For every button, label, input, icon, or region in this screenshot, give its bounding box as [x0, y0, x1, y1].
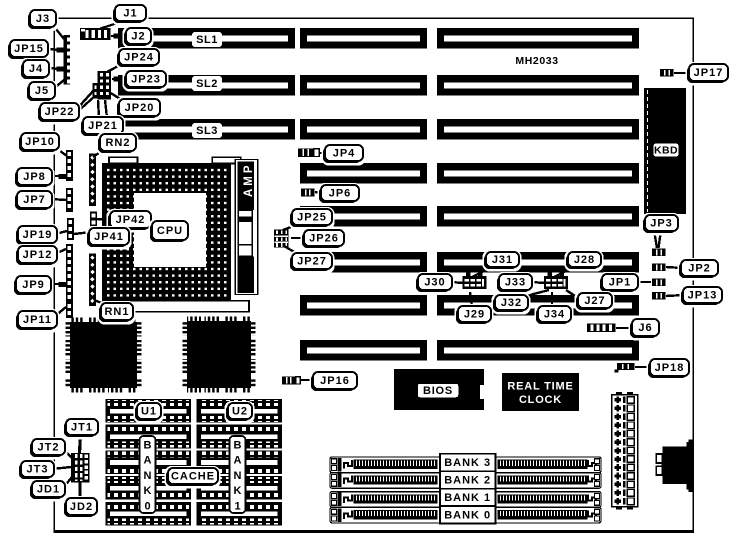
svg-text:J4: J4 — [29, 63, 43, 75]
svg-text:JT1: JT1 — [71, 422, 93, 434]
svg-text:JP19: JP19 — [23, 229, 53, 241]
svg-text:JP7: JP7 — [23, 194, 46, 206]
svg-text:BIOS: BIOS — [423, 385, 453, 397]
svg-text:MH2033: MH2033 — [515, 55, 558, 67]
svg-text:B: B — [234, 440, 242, 452]
svg-text:JP27: JP27 — [297, 256, 327, 268]
svg-text:CLOCK: CLOCK — [519, 394, 562, 406]
svg-text:SL1: SL1 — [196, 34, 218, 46]
svg-text:JP11: JP11 — [23, 314, 52, 326]
svg-text:J5: J5 — [35, 85, 49, 97]
svg-text:J1: J1 — [123, 8, 137, 20]
svg-text:J34: J34 — [544, 309, 565, 321]
svg-text:J32: J32 — [501, 297, 522, 309]
svg-text:JP25: JP25 — [297, 212, 327, 224]
svg-text:JD1: JD1 — [37, 484, 60, 496]
svg-text:SL2: SL2 — [196, 78, 218, 90]
svg-text:J2: J2 — [131, 31, 145, 43]
svg-text:RN1: RN1 — [104, 306, 129, 318]
svg-text:K: K — [144, 485, 152, 497]
svg-text:REAL TIME: REAL TIME — [507, 381, 573, 393]
svg-text:JP21: JP21 — [88, 120, 118, 132]
svg-text:JP13: JP13 — [688, 290, 718, 302]
svg-text:BANK 3: BANK 3 — [444, 457, 491, 469]
svg-text:K: K — [234, 485, 242, 497]
svg-text:JP15: JP15 — [14, 43, 44, 55]
svg-text:SL3: SL3 — [196, 125, 218, 137]
svg-text:KBD: KBD — [654, 145, 678, 157]
svg-text:B: B — [144, 440, 152, 452]
svg-text:JP10: JP10 — [25, 136, 55, 148]
svg-text:J31: J31 — [492, 254, 513, 266]
svg-text:JP17: JP17 — [694, 67, 724, 79]
svg-text:U2: U2 — [232, 406, 248, 418]
svg-text:J29: J29 — [464, 309, 485, 321]
svg-text:JP24: JP24 — [124, 52, 154, 64]
svg-text:JP9: JP9 — [22, 279, 45, 291]
svg-text:JP23: JP23 — [131, 74, 161, 86]
svg-text:RN2: RN2 — [105, 137, 130, 149]
svg-text:JP26: JP26 — [309, 233, 339, 245]
svg-text:JP41: JP41 — [94, 231, 124, 243]
svg-text:CPU: CPU — [157, 225, 183, 237]
svg-text:J30: J30 — [424, 277, 445, 289]
svg-text:JP2: JP2 — [688, 263, 711, 275]
svg-text:JP12: JP12 — [23, 249, 53, 261]
svg-text:U1: U1 — [141, 406, 157, 418]
svg-text:JD2: JD2 — [70, 501, 93, 513]
svg-text:J33: J33 — [505, 277, 526, 289]
svg-text:JT2: JT2 — [38, 442, 60, 454]
svg-text:JP4: JP4 — [333, 148, 356, 160]
svg-text:JP8: JP8 — [23, 171, 46, 183]
svg-text:JP16: JP16 — [320, 375, 350, 387]
svg-text:JT3: JT3 — [27, 464, 49, 476]
svg-text:J6: J6 — [638, 322, 652, 334]
svg-text:A: A — [144, 455, 152, 467]
svg-text:N: N — [144, 470, 152, 482]
svg-text:N: N — [234, 470, 242, 482]
svg-text:JP18: JP18 — [655, 362, 685, 374]
svg-text:JP1: JP1 — [609, 277, 632, 289]
svg-text:CACHE: CACHE — [171, 471, 215, 483]
svg-text:AMP: AMP — [243, 162, 255, 197]
svg-text:BANK 2: BANK 2 — [444, 475, 491, 487]
svg-text:1: 1 — [234, 500, 240, 512]
svg-text:JP3: JP3 — [650, 218, 673, 230]
svg-text:JP6: JP6 — [329, 188, 352, 200]
svg-text:J3: J3 — [36, 13, 50, 25]
svg-text:JP20: JP20 — [125, 102, 155, 114]
svg-text:JP42: JP42 — [116, 214, 146, 226]
svg-text:0: 0 — [144, 500, 150, 512]
svg-text:BANK 1: BANK 1 — [444, 492, 491, 504]
svg-text:J27: J27 — [584, 295, 605, 307]
svg-text:JP22: JP22 — [45, 106, 75, 118]
svg-text:J28: J28 — [574, 254, 595, 266]
svg-text:BANK 0: BANK 0 — [444, 509, 491, 521]
svg-text:A: A — [234, 455, 242, 467]
